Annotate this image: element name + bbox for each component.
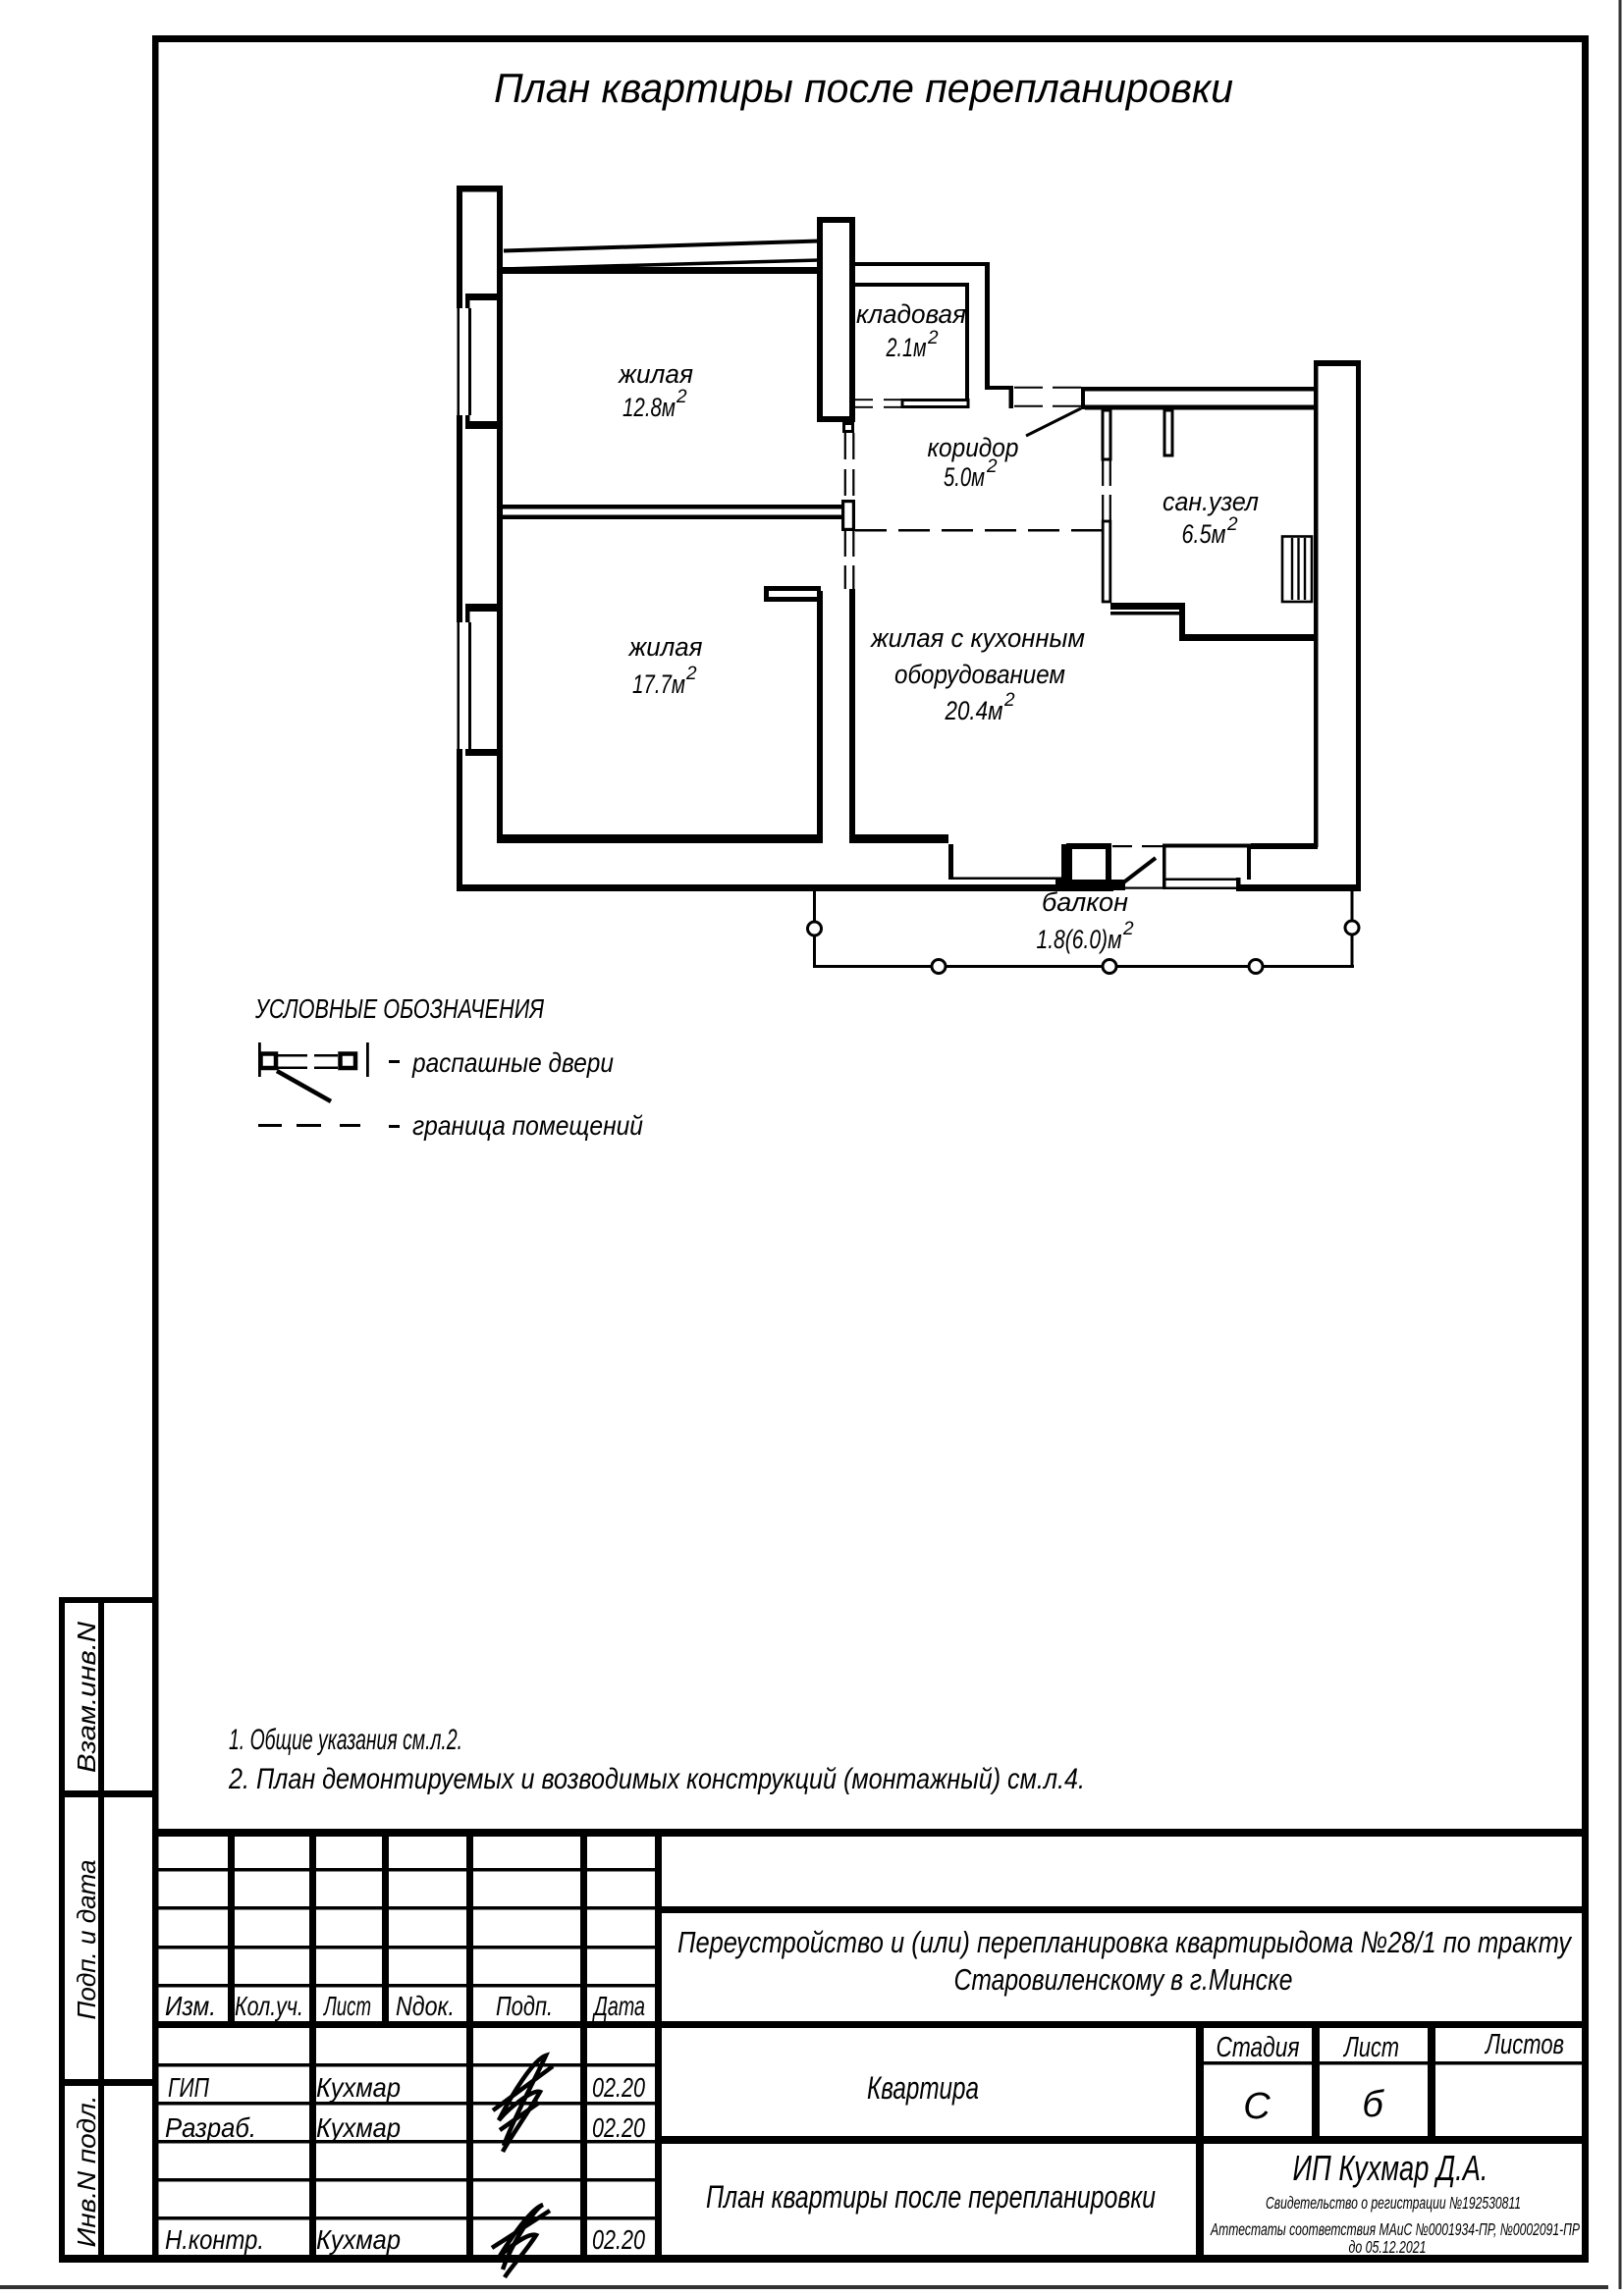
svg-text:2. План демонтируемых и возвод: 2. План демонтируемых и возводимых конст…: [228, 1763, 1085, 1795]
svg-text:02.20: 02.20: [592, 2224, 645, 2255]
svg-text:Взам.инв.N: Взам.инв.N: [72, 1622, 101, 1773]
svg-text:Старовиленскому в г.Минске: Старовиленскому в г.Минске: [954, 1962, 1293, 1997]
svg-text:План квартиры после перепланир: План квартиры после перепланировки: [706, 2179, 1156, 2215]
svg-text:Кол.уч.: Кол.уч.: [235, 1991, 303, 2021]
svg-text:Листов: Листов: [1484, 2029, 1564, 2060]
svg-text:Лист: Лист: [1343, 2032, 1399, 2063]
svg-text:Кухмар: Кухмар: [316, 2112, 401, 2143]
svg-text:сан.узел: сан.узел: [1163, 487, 1259, 516]
svg-text:граница помещений: граница помещений: [412, 1110, 643, 1141]
svg-text:17.7м: 17.7м: [632, 669, 685, 699]
svg-text:6.5м: 6.5м: [1182, 519, 1226, 549]
svg-text:Инв.N подл.: Инв.N подл.: [72, 2096, 101, 2248]
svg-text:20.4м: 20.4м: [945, 696, 1003, 725]
svg-text:Кухмар: Кухмар: [316, 2224, 401, 2255]
svg-text:Квартира: Квартира: [867, 2070, 979, 2106]
svg-text:2: 2: [1226, 514, 1238, 535]
svg-text:5.0м: 5.0м: [944, 462, 985, 492]
svg-text:С: С: [1243, 2086, 1271, 2127]
svg-text:02.20: 02.20: [592, 2072, 645, 2103]
svg-text:План квартиры после перепланир: План квартиры после перепланировки: [494, 65, 1233, 111]
svg-text:Nдок.: Nдок.: [396, 1991, 455, 2021]
svg-text:2: 2: [685, 664, 697, 684]
svg-text:Разраб.: Разраб.: [165, 2112, 256, 2143]
svg-text:Лист: Лист: [323, 1991, 371, 2021]
svg-text:жилая с кухонным: жилая с кухонным: [870, 623, 1085, 653]
svg-text:жилая: жилая: [628, 632, 703, 662]
svg-text:Переустройство и (или) перепла: Переустройство и (или) перепланировка кв…: [677, 1925, 1573, 1959]
svg-text:Подп.: Подп.: [496, 1991, 553, 2021]
svg-text:до 05.12.2021: до 05.12.2021: [1349, 2237, 1427, 2257]
svg-text:2.1м: 2.1м: [886, 333, 927, 362]
svg-text:2: 2: [986, 456, 998, 477]
svg-text:Аттестаты соответствия МАиС №0: Аттестаты соответствия МАиС №0001934-ПР,…: [1210, 2219, 1580, 2239]
svg-text:02.20: 02.20: [592, 2112, 645, 2143]
svg-text:распашные двери: распашные двери: [411, 1047, 614, 1078]
svg-text:Н.контр.: Н.контр.: [165, 2224, 264, 2255]
svg-text:1.8(6.0)м: 1.8(6.0)м: [1037, 925, 1122, 954]
svg-text:2: 2: [1122, 919, 1134, 939]
svg-text:2: 2: [676, 387, 687, 407]
svg-text:2: 2: [927, 328, 939, 348]
svg-text:1. Общие указания см.л.2.: 1. Общие указания см.л.2.: [229, 1724, 462, 1756]
svg-text:оборудованием: оборудованием: [894, 660, 1065, 689]
svg-text:УСЛОВНЫЕ ОБОЗНАЧЕНИЯ: УСЛОВНЫЕ ОБОЗНАЧЕНИЯ: [254, 993, 544, 1024]
svg-text:12.8м: 12.8м: [622, 393, 676, 422]
svg-text:Свидетельство о регистрации №1: Свидетельство о регистрации №192530811: [1266, 2193, 1521, 2213]
svg-text:кладовая: кладовая: [856, 299, 966, 329]
svg-text:Дата: Дата: [592, 1991, 645, 2021]
svg-text:Кухмар: Кухмар: [316, 2072, 401, 2103]
svg-text:Подп. и дата: Подп. и дата: [72, 1860, 101, 2020]
svg-text:ИП Кухмар Д.А.: ИП Кухмар Д.А.: [1293, 2148, 1488, 2188]
svg-text:Стадия: Стадия: [1217, 2032, 1300, 2063]
svg-text:2: 2: [1003, 690, 1015, 711]
svg-text:коридор: коридор: [928, 433, 1019, 462]
svg-text:Изм.: Изм.: [165, 1991, 216, 2021]
svg-text:ГИП: ГИП: [168, 2072, 210, 2103]
svg-text:балкон: балкон: [1042, 887, 1128, 917]
svg-text:жилая: жилая: [618, 359, 693, 389]
svg-text:б: б: [1362, 2084, 1384, 2125]
